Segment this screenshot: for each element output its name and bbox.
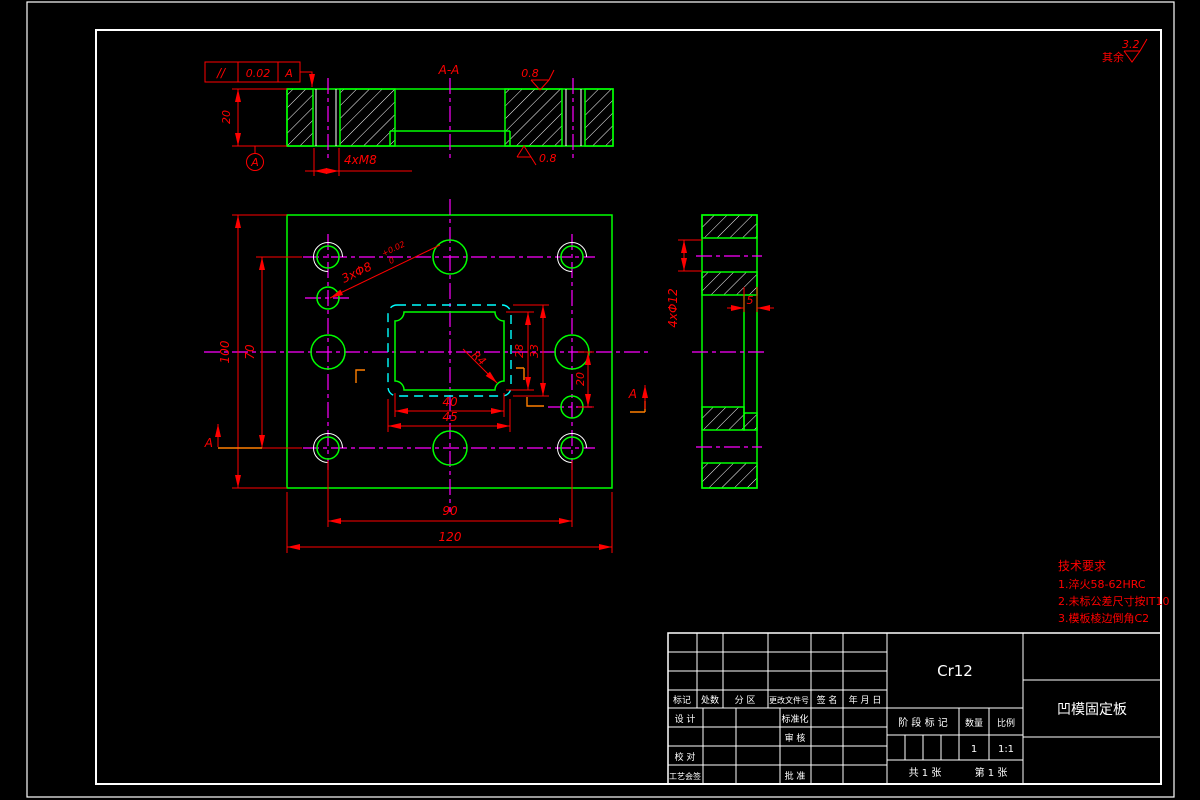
hatch-band xyxy=(702,215,757,238)
tolerance-symbol: // xyxy=(216,66,227,80)
roughness-rest-prefix: 其余 xyxy=(1102,50,1124,64)
roughness-rest-value: 3.2 xyxy=(1122,38,1140,51)
col-count: 处数 xyxy=(701,694,719,706)
hatch-band xyxy=(702,272,757,295)
scale-value: 1:1 xyxy=(998,744,1014,755)
tolerance-value: 0.02 xyxy=(246,67,271,80)
col-mark: 标记 xyxy=(673,694,691,706)
svg-text:40: 40 xyxy=(442,395,458,409)
hatch-block xyxy=(287,89,313,146)
dowel-hole-callout: 3xΦ8 +0.02 0 xyxy=(330,240,440,298)
row-approve: 批 准 xyxy=(785,770,806,782)
row-process-sign: 工艺会签 xyxy=(669,771,701,781)
dim-4xd12: 4xΦ12 xyxy=(666,240,702,328)
scale-header: 比例 xyxy=(997,717,1015,729)
dowel-label: 3xΦ8 xyxy=(339,259,374,285)
sheet-number: 第 1 张 xyxy=(975,766,1008,779)
tech-req-item: 1.淬火58-62HRC xyxy=(1058,577,1146,591)
tolerance-leader xyxy=(300,72,312,87)
col-zone: 分 区 xyxy=(735,695,756,706)
hatch-band xyxy=(702,407,744,430)
section-arrow-a-right: A xyxy=(628,387,637,401)
svg-text:20: 20 xyxy=(574,372,587,386)
part-name: 凹模固定板 xyxy=(1057,702,1127,718)
qty-header: 数量 xyxy=(965,717,983,729)
cad-drawing-canvas: A-A // 0.02 A 20 A 4xM8 0.8 xyxy=(0,0,1200,800)
inner-frame xyxy=(96,30,1161,784)
dim-thread-label: 4xM8 xyxy=(344,153,377,167)
centerlines xyxy=(204,199,650,512)
svg-text:90: 90 xyxy=(442,504,458,518)
dim-4xd12-label: 4xΦ12 xyxy=(666,288,680,327)
tech-req-title: 技术要求 xyxy=(1058,559,1106,573)
datum-a-symbol: A xyxy=(247,146,264,171)
dim-step-label: 5 xyxy=(747,294,754,307)
hatch-block xyxy=(585,89,613,146)
row-design: 设 计 xyxy=(675,713,696,725)
front-view: 100 70 90 120 40 45 xyxy=(204,199,650,553)
roughness-bottom: 0.8 xyxy=(517,146,557,165)
parallelism-tolerance-frame: // 0.02 A xyxy=(205,62,312,87)
tech-req-item: 3.模板棱边倒角C2 xyxy=(1058,611,1149,625)
hatch-block xyxy=(505,89,562,146)
col-signature: 签 名 xyxy=(817,694,838,706)
sheet-total: 共 1 张 xyxy=(909,767,942,779)
section-arrow-a-left: A xyxy=(204,436,213,450)
general-roughness-note: 其余 3.2 xyxy=(1102,38,1147,64)
roughness-top: 0.8 xyxy=(521,67,554,90)
material-value: Cr12 xyxy=(937,662,973,680)
hatch-block xyxy=(340,89,395,146)
datum-label: A xyxy=(250,156,259,169)
dim-thickness-20: 20 xyxy=(220,89,287,146)
svg-text:45: 45 xyxy=(442,410,457,424)
title-block: 标记 处数 分 区 更改文件号 签 名 年 月 日 设 计 标准化 审 核 校 … xyxy=(668,633,1161,784)
dim-thread-4xM8: 4xM8 xyxy=(305,148,412,176)
svg-text:28: 28 xyxy=(513,344,526,358)
row-review: 审 核 xyxy=(785,732,806,744)
svg-text:100: 100 xyxy=(218,340,232,363)
svg-text:33: 33 xyxy=(528,344,541,358)
svg-text:120: 120 xyxy=(439,530,462,544)
section-view-aa: A-A // 0.02 A 20 A 4xM8 0.8 xyxy=(205,62,613,176)
roughness-top-value: 0.8 xyxy=(521,67,539,80)
dim-thickness-label: 20 xyxy=(220,110,233,124)
row-check: 校 对 xyxy=(675,751,696,763)
dowel-tol-upper: +0.02 xyxy=(380,240,406,259)
side-view: 4xΦ12 5 xyxy=(666,215,774,488)
roughness-bottom-value: 0.8 xyxy=(539,152,557,165)
section-title: A-A xyxy=(438,63,460,77)
col-change-doc: 更改文件号 xyxy=(769,695,809,705)
svg-text:70: 70 xyxy=(243,344,257,360)
dim-20-dowel: 20 xyxy=(574,352,594,407)
row-standardization: 标准化 xyxy=(781,713,808,725)
tolerance-datum: A xyxy=(284,67,293,80)
hatch-band xyxy=(702,463,757,488)
radius-callout: R4 xyxy=(463,349,497,383)
col-date: 年 月 日 xyxy=(849,694,882,706)
hatch-band xyxy=(744,413,757,430)
stage-header: 阶 段 标 记 xyxy=(898,716,948,729)
tech-requirements: 技术要求 1.淬火58-62HRC 2.未标公差尺寸按IT10 3.模板棱边倒角… xyxy=(1058,559,1169,625)
qty-value: 1 xyxy=(971,744,977,755)
tech-req-item: 2.未标公差尺寸按IT10 xyxy=(1058,594,1169,608)
